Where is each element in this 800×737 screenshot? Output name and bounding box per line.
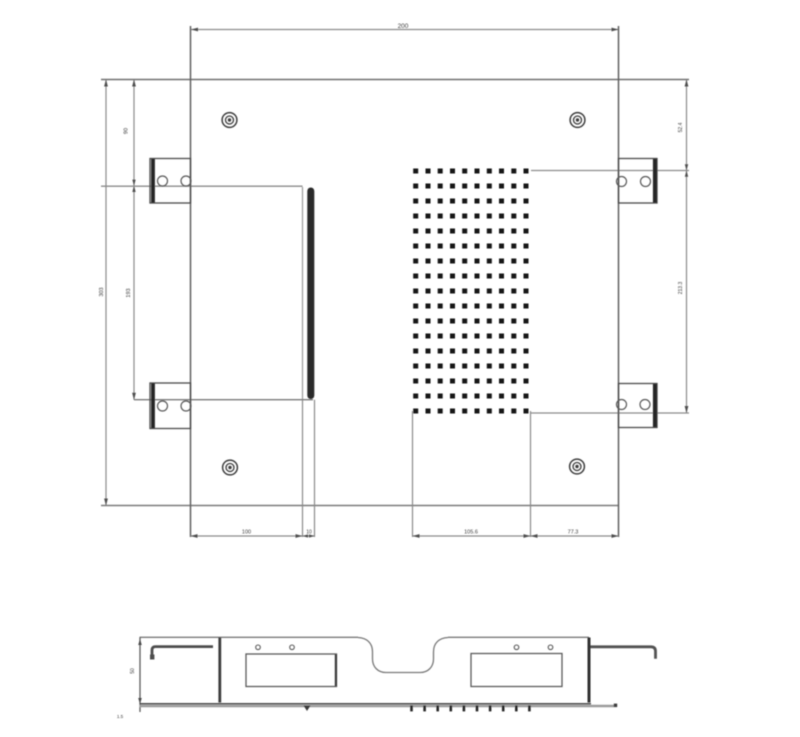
svg-text:1.5: 1.5 [117,714,124,719]
svg-text:10: 10 [306,530,312,536]
svg-text:90: 90 [124,128,130,134]
svg-text:50: 50 [130,668,136,674]
svg-text:213.3: 213.3 [678,282,684,295]
svg-text:200: 200 [398,23,409,30]
svg-text:303: 303 [99,287,105,296]
svg-text:100: 100 [242,530,251,536]
svg-text:193: 193 [126,288,132,297]
svg-text:77.3: 77.3 [568,530,579,536]
svg-text:105.6: 105.6 [464,530,478,536]
svg-text:52.4: 52.4 [678,122,684,132]
